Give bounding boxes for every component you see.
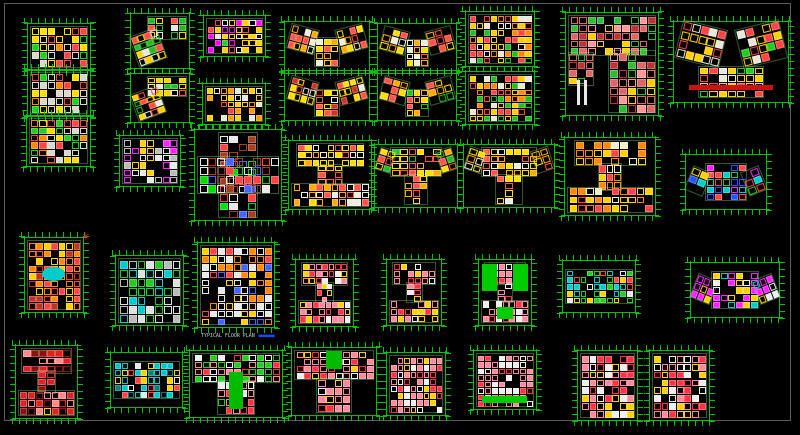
room-cell xyxy=(120,270,128,278)
room-cell xyxy=(485,388,491,394)
room-cell xyxy=(404,379,410,385)
room-cell xyxy=(485,382,491,388)
floor-plan-p19[interactable] xyxy=(377,147,455,205)
room-cell xyxy=(29,281,36,287)
floor-plan-p22[interactable] xyxy=(688,157,764,207)
room-cell xyxy=(122,370,128,376)
floor-plan-p17[interactable] xyxy=(197,132,279,218)
room-cell xyxy=(253,158,261,166)
floor-plan-p35[interactable] xyxy=(389,355,443,413)
room-cell xyxy=(491,51,497,57)
dimension-lines xyxy=(371,139,461,145)
room-cell xyxy=(23,366,30,373)
room-cell xyxy=(218,399,225,406)
floor-plan-p20[interactable] xyxy=(466,147,552,205)
floor-plan-p07[interactable] xyxy=(205,86,263,122)
room-cell xyxy=(154,363,160,369)
room-cell xyxy=(628,70,636,77)
room-cell xyxy=(72,28,79,35)
room-cell xyxy=(498,103,504,109)
room-cell xyxy=(684,356,691,363)
room-cell xyxy=(522,316,528,322)
room-cell xyxy=(728,75,736,82)
room-cell xyxy=(241,287,248,294)
room-cell xyxy=(737,68,745,75)
room-cell xyxy=(628,105,636,112)
room-cell xyxy=(249,248,256,255)
room-cell xyxy=(326,309,332,315)
floor-plan-p25[interactable]: TYPICAL FLOOR PLAN xyxy=(200,245,272,325)
room-cell xyxy=(141,392,147,398)
room-cell xyxy=(300,309,306,315)
room-cell xyxy=(525,51,531,57)
room-cell xyxy=(234,303,241,310)
room-cell xyxy=(719,68,727,75)
room-cell xyxy=(640,41,648,48)
room-cell xyxy=(360,40,368,48)
room-cell xyxy=(483,301,489,307)
room-cell xyxy=(135,363,141,369)
room-cell xyxy=(157,106,165,114)
room-cell xyxy=(491,90,497,96)
room-cell xyxy=(326,396,333,403)
room-cell xyxy=(64,128,71,134)
room-cell xyxy=(721,273,728,279)
room-cell xyxy=(597,380,604,387)
room-cell xyxy=(597,387,604,394)
room-cell xyxy=(470,76,476,82)
room-cell xyxy=(505,198,513,204)
room-cell xyxy=(171,18,178,24)
room-cell xyxy=(80,98,87,105)
room-cell xyxy=(522,170,529,176)
room-cell xyxy=(40,90,47,97)
room-cell xyxy=(429,271,435,277)
room-cell xyxy=(195,369,202,375)
caption-underline xyxy=(259,334,275,336)
room-cell xyxy=(128,392,134,398)
room-cell xyxy=(132,170,139,176)
room-cell xyxy=(525,103,531,109)
room-cell xyxy=(417,365,423,371)
room-cell xyxy=(332,302,338,308)
room-cell xyxy=(66,251,73,257)
room-cell xyxy=(498,156,505,162)
room-cell xyxy=(338,316,344,322)
room-cell xyxy=(300,316,306,322)
room-cell xyxy=(32,74,39,81)
room-cell xyxy=(400,31,409,39)
north-arrow-icon[interactable]: ✳ xyxy=(82,230,90,243)
room-cell xyxy=(522,149,529,155)
room-cell xyxy=(74,266,81,272)
room-cell xyxy=(391,365,397,371)
room-cell xyxy=(155,148,162,154)
room-cell xyxy=(662,387,669,394)
room-cell xyxy=(512,83,518,89)
room-cell xyxy=(357,160,364,166)
floor-plan-p12[interactable] xyxy=(468,14,532,64)
room-cell xyxy=(64,120,71,126)
dimension-lines xyxy=(186,345,286,351)
room-cell xyxy=(743,302,750,308)
dimension-lines xyxy=(562,115,662,121)
room-cell xyxy=(51,281,58,287)
room-cell xyxy=(208,158,216,166)
plan-outline xyxy=(705,163,748,201)
room-cell xyxy=(518,83,524,89)
room-cell xyxy=(513,356,519,362)
room-cell xyxy=(611,150,619,157)
dimension-lines xyxy=(462,124,538,130)
room-cell xyxy=(518,103,524,109)
floor-plan-p04[interactable] xyxy=(133,16,187,66)
room-cell xyxy=(135,370,141,376)
floor-plan-p21[interactable] xyxy=(567,140,653,213)
dimension-lines xyxy=(127,8,193,14)
room-cell xyxy=(218,362,225,368)
room-cell xyxy=(525,30,531,36)
room-cell xyxy=(147,177,154,183)
room-cell xyxy=(249,311,256,318)
room-cell xyxy=(470,44,476,50)
room-cell xyxy=(407,97,414,103)
room-cell xyxy=(597,33,605,40)
plan-outline xyxy=(316,378,351,413)
room-cell xyxy=(434,79,443,87)
room-cell xyxy=(407,290,414,295)
room-cell xyxy=(669,387,676,394)
cad-viewport[interactable]: TYPICAL FLOOR PLAN ✳ xyxy=(0,0,800,435)
room-cell xyxy=(421,54,428,60)
room-cell xyxy=(316,53,323,59)
room-cell xyxy=(715,194,722,200)
dimension-lines xyxy=(470,345,540,351)
room-cell xyxy=(226,167,234,175)
floor-plan-p05[interactable] xyxy=(133,76,187,120)
room-cell xyxy=(520,356,526,362)
room-cell xyxy=(350,145,357,151)
dimension-lines xyxy=(458,143,464,209)
room-cell xyxy=(597,372,604,379)
room-cell xyxy=(147,155,154,161)
floor-plan-p27[interactable] xyxy=(389,262,439,323)
room-cell xyxy=(226,264,233,271)
room-cell xyxy=(20,400,27,407)
dimension-lines xyxy=(531,258,537,327)
room-cell xyxy=(249,34,255,40)
dimension-lines xyxy=(189,128,195,222)
room-cell xyxy=(582,403,589,410)
room-cell xyxy=(48,98,55,105)
room-cell xyxy=(414,284,421,289)
dimension-lines xyxy=(473,258,479,327)
room-cell xyxy=(484,37,490,43)
room-cell xyxy=(39,350,46,357)
room-cell xyxy=(235,95,241,101)
room-cell xyxy=(506,362,512,368)
room-cell xyxy=(318,172,325,178)
room-cell xyxy=(229,194,237,201)
plan-feature-fill xyxy=(497,307,512,319)
room-cell xyxy=(424,372,430,378)
floor-plan-p03[interactable] xyxy=(29,118,88,164)
room-cell xyxy=(332,316,338,322)
room-cell xyxy=(391,316,397,322)
floor-plan-p18[interactable] xyxy=(291,143,369,207)
dimension-lines xyxy=(107,347,186,353)
room-cell xyxy=(637,105,645,112)
floor-plan-p30[interactable] xyxy=(693,265,777,315)
floor-plan-p10[interactable] xyxy=(380,26,454,68)
room-cell xyxy=(586,62,593,69)
floor-plan-p08[interactable] xyxy=(287,24,367,68)
room-cell xyxy=(324,104,331,110)
room-cell xyxy=(32,44,39,51)
room-cell xyxy=(47,372,55,378)
room-cell xyxy=(332,184,339,190)
room-cell xyxy=(210,355,217,361)
dimension-lines xyxy=(687,317,783,323)
room-cell xyxy=(115,385,121,391)
room-cell xyxy=(590,364,597,371)
room-cell xyxy=(525,16,531,22)
room-cell xyxy=(335,405,342,412)
floor-plan-p38[interactable] xyxy=(652,353,707,418)
room-cell xyxy=(148,385,154,391)
room-cell xyxy=(736,273,743,279)
room-cell xyxy=(607,298,613,304)
room-cell xyxy=(607,165,614,172)
room-cell xyxy=(59,400,66,407)
room-cell xyxy=(228,108,234,114)
floor-plan-p16[interactable] xyxy=(122,138,178,184)
room-cell xyxy=(766,42,776,52)
dimension-lines xyxy=(23,166,94,172)
room-cell xyxy=(614,165,621,172)
room-cell xyxy=(578,197,586,204)
room-cell xyxy=(362,184,369,190)
floor-plan-p13[interactable] xyxy=(468,74,532,122)
room-cell xyxy=(141,370,147,376)
floor-plan-p11[interactable] xyxy=(380,76,454,118)
floor-plan-p31[interactable] xyxy=(18,348,75,416)
room-cell xyxy=(628,88,636,95)
room-cell xyxy=(55,358,62,365)
room-cell xyxy=(265,264,272,271)
room-cell xyxy=(47,128,54,134)
room-cell xyxy=(391,379,397,385)
plan-outline xyxy=(314,37,340,67)
room-cell xyxy=(619,105,627,112)
floor-plan-p09[interactable] xyxy=(287,76,367,118)
floor-plan-p06[interactable] xyxy=(206,18,263,54)
room-cell xyxy=(677,403,684,410)
room-cell xyxy=(437,386,443,392)
room-cell xyxy=(417,407,423,413)
room-cell xyxy=(329,271,335,277)
room-cell xyxy=(36,251,43,257)
floor-plan-p36[interactable] xyxy=(476,353,534,407)
room-cell xyxy=(163,155,170,161)
room-cell xyxy=(343,405,350,412)
room-cell xyxy=(256,27,262,33)
room-cell xyxy=(29,266,36,272)
dimension-lines xyxy=(372,22,378,72)
room-cell xyxy=(414,54,421,60)
room-cell xyxy=(31,135,38,141)
room-cell xyxy=(44,251,51,257)
floor-plan-p32[interactable] xyxy=(113,355,180,405)
room-cell xyxy=(215,40,221,46)
room-cell xyxy=(32,90,39,97)
room-cell xyxy=(308,38,316,46)
room-cell xyxy=(569,62,576,69)
dimension-lines xyxy=(24,64,94,70)
room-cell xyxy=(80,28,87,35)
room-cell xyxy=(51,258,58,264)
room-cell xyxy=(713,302,720,308)
floor-plan-p15[interactable] xyxy=(676,24,786,100)
plan-caption: TYPICAL FLOOR PLAN xyxy=(201,334,275,338)
dimension-lines xyxy=(77,344,83,420)
room-cell xyxy=(244,185,252,193)
room-cell xyxy=(746,75,754,82)
dimension-lines xyxy=(646,345,713,351)
room-cell xyxy=(607,277,613,283)
dimension-lines xyxy=(655,136,661,217)
room-cell xyxy=(470,83,476,89)
room-cell xyxy=(351,373,358,379)
room-cell xyxy=(120,306,128,314)
room-cell xyxy=(218,382,225,389)
room-cell xyxy=(699,387,706,394)
room-cell xyxy=(499,369,505,375)
room-cell xyxy=(571,41,579,48)
room-cell xyxy=(654,395,661,402)
room-cell xyxy=(432,316,438,322)
room-cell xyxy=(249,40,255,46)
floor-plan-p23[interactable] xyxy=(27,240,81,310)
room-cell xyxy=(404,386,410,392)
room-cell xyxy=(398,400,404,406)
room-cell xyxy=(594,142,602,149)
floor-plan-p01[interactable] xyxy=(30,26,88,68)
room-cell xyxy=(173,261,181,269)
room-cell xyxy=(74,273,81,279)
room-cell xyxy=(239,144,247,151)
plan-caption-text: TYPICAL FLOOR PLAN xyxy=(201,333,255,339)
floor-plan-p37[interactable] xyxy=(580,353,635,418)
room-cell xyxy=(174,370,180,376)
room-cell xyxy=(148,370,154,376)
room-cell xyxy=(135,392,141,398)
room-cell xyxy=(234,280,241,287)
room-cell xyxy=(324,110,331,116)
dimension-lines xyxy=(24,18,94,24)
room-cell xyxy=(512,116,518,122)
room-cell xyxy=(265,355,272,361)
room-cell xyxy=(398,365,404,371)
room-cell xyxy=(430,358,436,364)
room-cell xyxy=(324,46,331,52)
room-cell xyxy=(210,256,217,263)
room-cell xyxy=(52,400,59,407)
room-cell xyxy=(411,365,417,371)
floor-plan-p02[interactable] xyxy=(30,72,88,114)
room-cell xyxy=(569,70,576,77)
floor-plan-p24[interactable] xyxy=(118,258,181,323)
room-cell xyxy=(470,30,476,36)
room-cell xyxy=(179,84,186,89)
room-cell xyxy=(574,298,580,304)
room-cell xyxy=(407,284,414,289)
room-cell xyxy=(491,163,498,169)
floor-plan-p26[interactable] xyxy=(298,262,351,324)
room-cell xyxy=(620,387,627,394)
room-cell xyxy=(420,176,427,182)
dimension-lines xyxy=(180,134,186,188)
room-cell xyxy=(581,298,587,304)
plan-outline xyxy=(405,39,429,68)
floor-plan-p29[interactable] xyxy=(565,263,633,310)
dimension-lines xyxy=(107,407,186,413)
room-cell xyxy=(210,362,217,368)
room-cell xyxy=(506,264,512,270)
room-cell xyxy=(586,197,594,204)
room-cell xyxy=(619,79,627,86)
floor-plan-p14[interactable] xyxy=(568,15,656,113)
room-cell xyxy=(170,140,177,146)
room-cell xyxy=(627,403,634,410)
room-cell xyxy=(415,271,421,277)
room-cell xyxy=(627,284,633,290)
room-cell xyxy=(28,408,35,415)
room-cell xyxy=(620,277,626,283)
room-cell xyxy=(731,165,738,171)
room-cell xyxy=(339,192,346,198)
room-cell xyxy=(422,271,428,277)
room-cell xyxy=(63,358,70,365)
floor-plan-p28[interactable] xyxy=(481,262,529,323)
room-cell xyxy=(294,184,301,190)
room-cell xyxy=(47,150,54,156)
room-cell xyxy=(241,319,248,326)
room-cell xyxy=(66,273,73,279)
room-cell xyxy=(514,176,522,182)
room-cell xyxy=(627,298,633,304)
dimension-lines xyxy=(279,72,285,122)
room-cell xyxy=(36,281,43,287)
room-cell xyxy=(574,291,580,297)
dimension-lines xyxy=(198,14,204,58)
room-cell xyxy=(128,370,134,376)
room-cell xyxy=(129,297,137,305)
room-cell xyxy=(218,390,225,397)
room-cell xyxy=(692,411,699,418)
room-cell xyxy=(470,16,476,22)
room-cell xyxy=(326,405,333,412)
room-cell xyxy=(218,287,225,294)
room-cell xyxy=(120,279,128,287)
floor-plan-p34[interactable] xyxy=(294,350,374,413)
room-cell xyxy=(218,272,225,279)
room-cell xyxy=(72,44,79,51)
floor-plan-p33[interactable] xyxy=(192,353,280,415)
dimension-lines xyxy=(658,11,664,117)
room-cell xyxy=(417,379,423,385)
room-cell xyxy=(72,52,79,59)
